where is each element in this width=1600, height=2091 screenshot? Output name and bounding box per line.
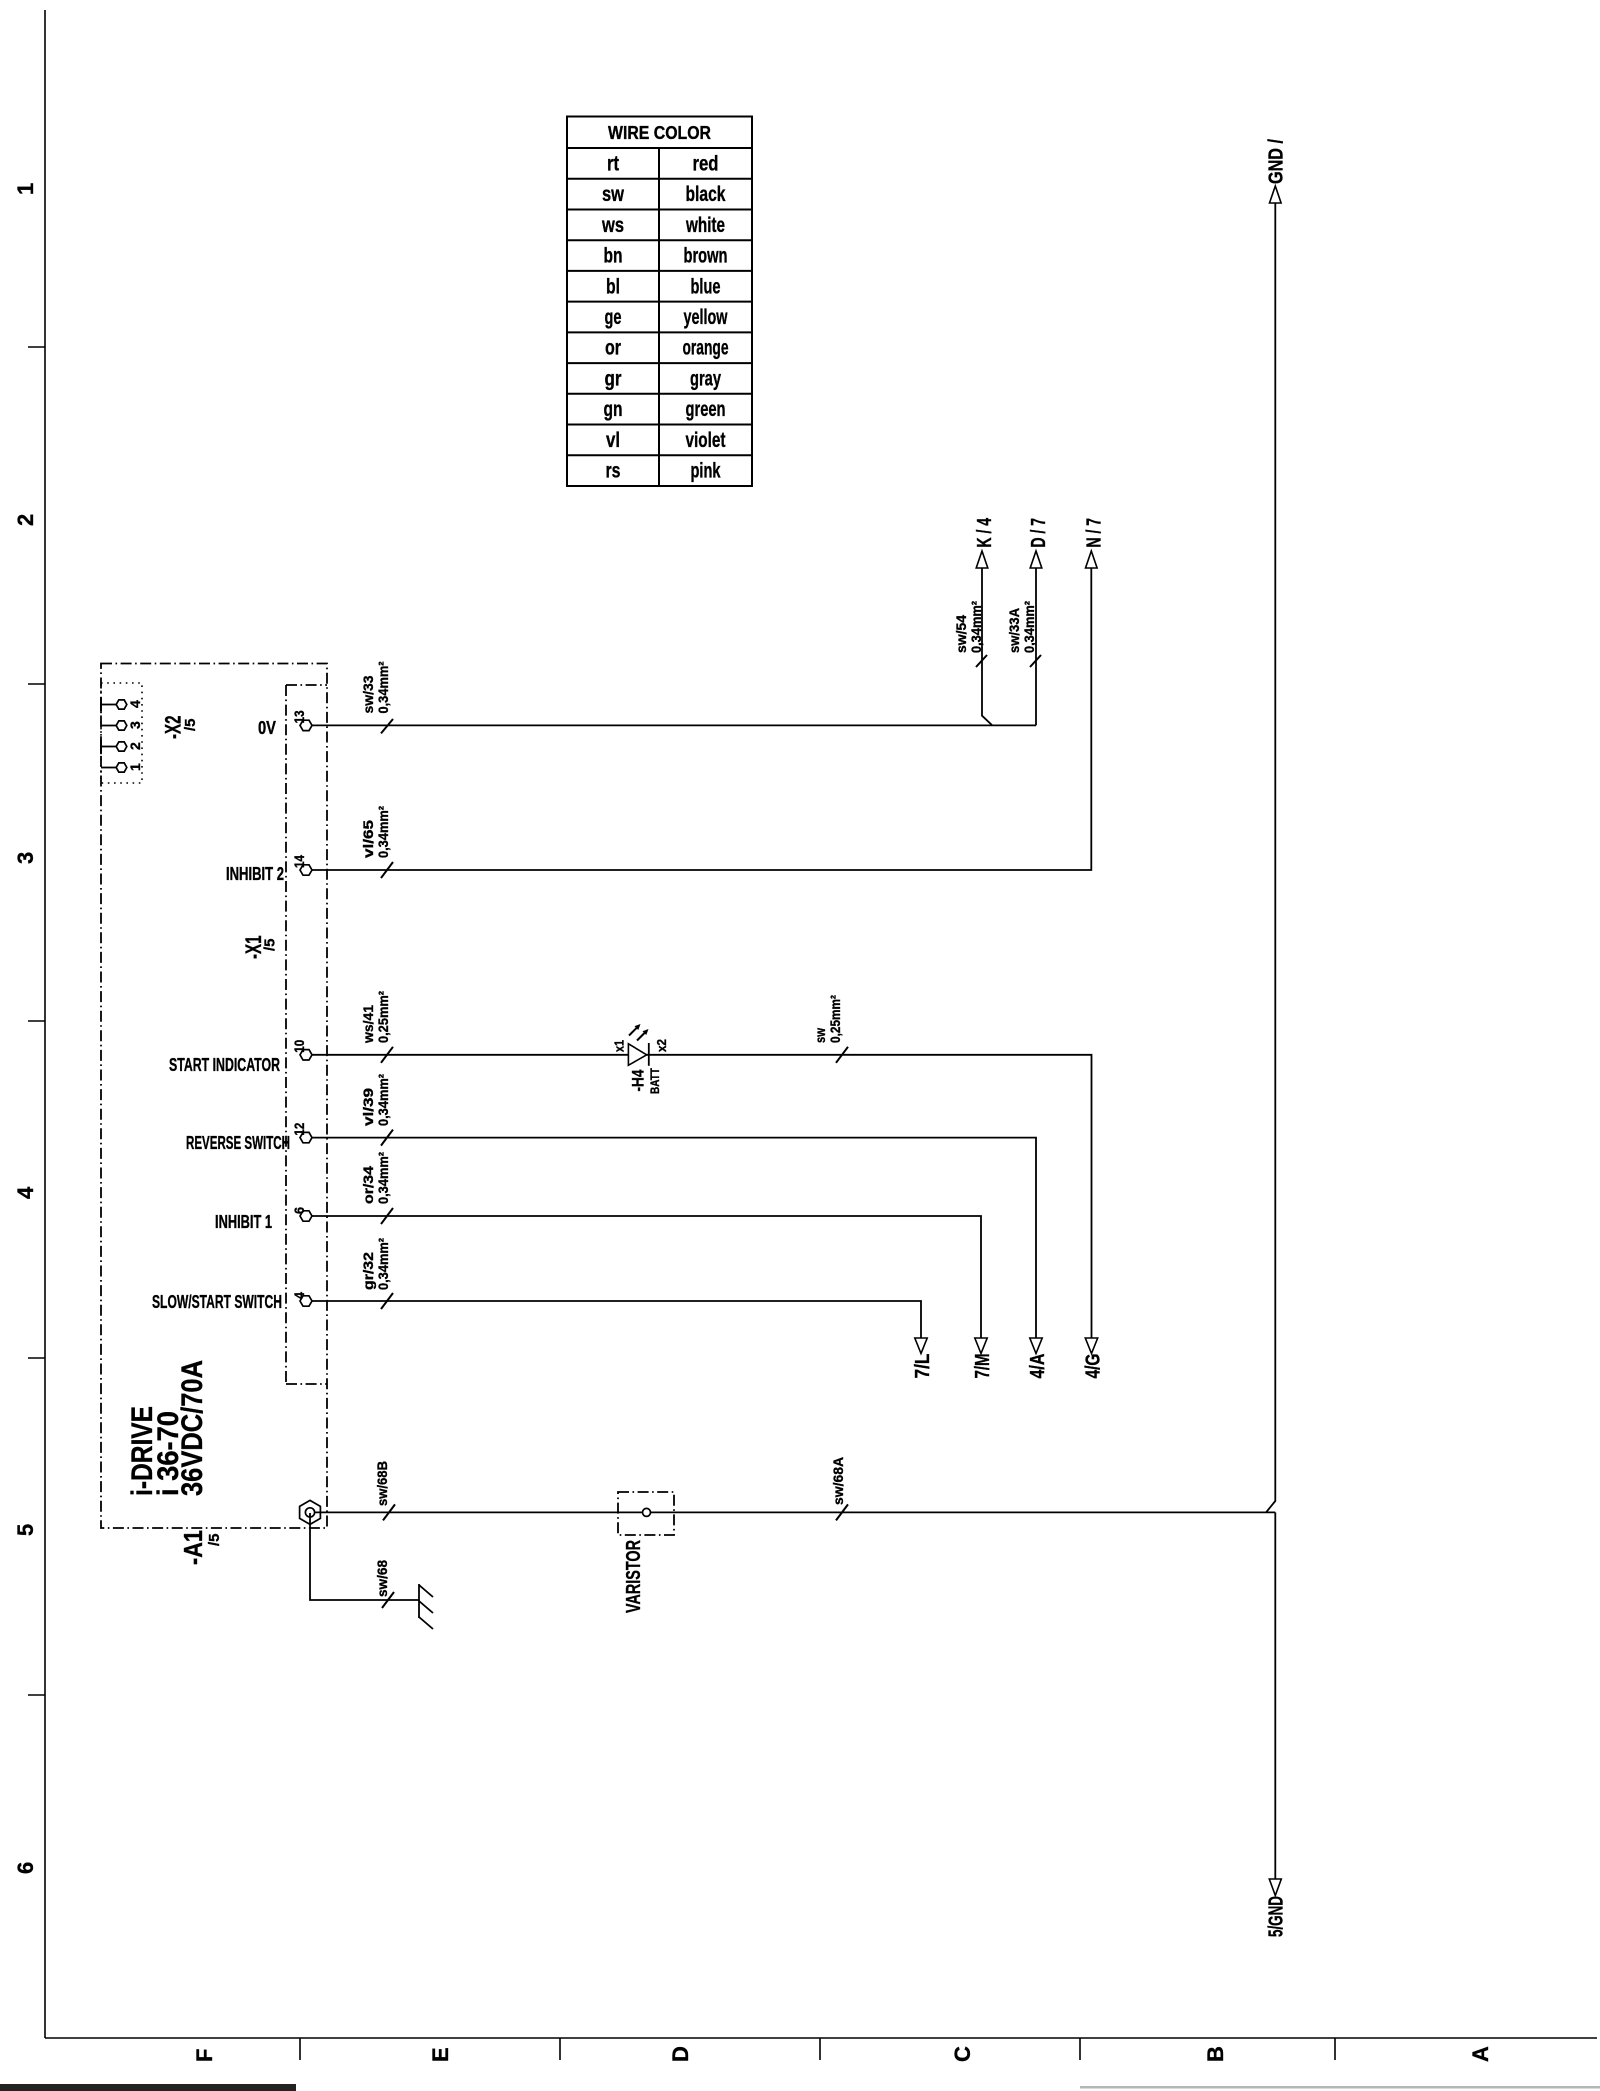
svg-text:VARISTOR: VARISTOR	[623, 1540, 645, 1613]
svg-text:7/M: 7/M	[972, 1354, 994, 1379]
svg-text:gr: gr	[605, 368, 622, 391]
svg-text:6: 6	[291, 1207, 307, 1214]
svg-text:ws: ws	[601, 214, 624, 237]
svg-text:REVERSE SWITCH: REVERSE SWITCH	[186, 1133, 290, 1153]
svg-text:gray: gray	[690, 368, 721, 391]
svg-text:orange: orange	[683, 337, 729, 360]
svg-text:D / 7: D / 7	[1028, 518, 1050, 548]
svg-text:vl/65: vl/65	[360, 820, 376, 858]
svg-text:vl: vl	[606, 429, 620, 452]
svg-text:0,34mm²: 0,34mm²	[375, 806, 391, 858]
svg-text:1: 1	[127, 763, 143, 771]
svg-text:or/34: or/34	[360, 1166, 376, 1204]
svg-text:5/GND: 5/GND	[1265, 1896, 1287, 1937]
svg-text:4/A: 4/A	[1027, 1354, 1049, 1379]
svg-text:/5: /5	[182, 719, 199, 732]
svg-text:0,34mm²: 0,34mm²	[1021, 601, 1037, 653]
svg-text:C: C	[950, 2046, 975, 2062]
svg-text:INHIBIT 1: INHIBIT 1	[215, 1212, 272, 1232]
svg-text:0,34mm²: 0,34mm²	[375, 1074, 391, 1126]
svg-text:bl: bl	[606, 275, 620, 298]
svg-text:7/L: 7/L	[912, 1354, 934, 1379]
svg-text:0,34mm²: 0,34mm²	[375, 1152, 391, 1204]
svg-text:blue: blue	[691, 275, 721, 298]
svg-text:2: 2	[13, 514, 38, 526]
svg-text:F: F	[192, 2049, 217, 2062]
svg-text:ge: ge	[605, 306, 622, 329]
svg-text:D: D	[668, 2046, 693, 2062]
svg-text:red: red	[693, 152, 719, 175]
svg-text:36VDC/70A: 36VDC/70A	[176, 1360, 209, 1496]
svg-text:sw/68: sw/68	[374, 1560, 390, 1597]
svg-text:13: 13	[291, 710, 307, 723]
svg-text:yellow: yellow	[684, 306, 728, 329]
svg-text:4: 4	[127, 700, 143, 708]
svg-text:green: green	[686, 398, 726, 421]
svg-text:gr/32: gr/32	[360, 1252, 376, 1290]
svg-text:/5: /5	[262, 939, 279, 952]
svg-text:A: A	[1468, 2046, 1493, 2062]
svg-text:1: 1	[13, 183, 38, 195]
svg-text:brown: brown	[684, 245, 728, 268]
svg-text:/5: /5	[206, 1534, 223, 1547]
svg-text:4: 4	[13, 1186, 38, 1199]
svg-text:2: 2	[127, 742, 143, 750]
svg-text:START INDICATOR: START INDICATOR	[169, 1055, 280, 1075]
svg-text:3: 3	[127, 721, 143, 729]
svg-text:SLOW/START SWITCH: SLOW/START SWITCH	[152, 1292, 282, 1312]
svg-text:-H4: -H4	[629, 1069, 648, 1091]
svg-text:0,34mm²: 0,34mm²	[968, 601, 984, 653]
svg-text:gn: gn	[604, 398, 623, 421]
svg-text:sw/68A: sw/68A	[830, 1457, 846, 1505]
svg-text:sw/54: sw/54	[953, 615, 969, 653]
svg-text:4/G: 4/G	[1083, 1354, 1105, 1379]
svg-text:white: white	[685, 214, 725, 237]
svg-text:or: or	[605, 337, 621, 360]
svg-text:sw/33: sw/33	[360, 675, 376, 713]
svg-text:WIRE COLOR: WIRE COLOR	[608, 123, 711, 143]
svg-text:N / 7: N / 7	[1083, 518, 1105, 548]
svg-text:5: 5	[13, 1524, 38, 1536]
svg-text:4: 4	[291, 1292, 307, 1299]
svg-text:GND /: GND /	[1265, 139, 1287, 184]
svg-text:12: 12	[291, 1122, 307, 1135]
svg-text:0V: 0V	[258, 718, 276, 738]
svg-text:INHIBIT 2: INHIBIT 2	[226, 864, 284, 884]
svg-text:sw/33A: sw/33A	[1006, 608, 1022, 653]
svg-text:0,34mm²: 0,34mm²	[375, 661, 391, 713]
svg-text:violet: violet	[686, 429, 726, 452]
svg-text:sw: sw	[602, 183, 625, 206]
svg-text:0,25mm²: 0,25mm²	[375, 991, 391, 1043]
svg-text:14: 14	[291, 855, 307, 868]
svg-text:ws/41: ws/41	[360, 1005, 376, 1044]
svg-text:E: E	[428, 2047, 453, 2062]
svg-text:-A1: -A1	[178, 1530, 208, 1565]
svg-text:vl/39: vl/39	[360, 1088, 376, 1126]
svg-text:pink: pink	[691, 460, 721, 483]
svg-text:3: 3	[13, 852, 38, 864]
svg-text:BATT: BATT	[648, 1067, 662, 1094]
svg-text:B: B	[1203, 2046, 1228, 2062]
svg-text:sw: sw	[812, 1028, 828, 1043]
svg-text:rs: rs	[606, 460, 621, 483]
svg-text:rt: rt	[607, 152, 619, 175]
svg-text:10: 10	[291, 1040, 307, 1053]
svg-text:0,34mm²: 0,34mm²	[375, 1238, 391, 1290]
svg-text:black: black	[686, 183, 726, 206]
svg-text:bn: bn	[604, 245, 623, 268]
svg-text:6: 6	[13, 1862, 38, 1874]
svg-text:K / 4: K / 4	[974, 517, 996, 547]
svg-text:x1: x1	[612, 1040, 627, 1052]
svg-text:0,25mm²: 0,25mm²	[827, 995, 843, 1043]
svg-text:x2: x2	[654, 1039, 669, 1052]
svg-text:sw/68B: sw/68B	[374, 1461, 390, 1506]
